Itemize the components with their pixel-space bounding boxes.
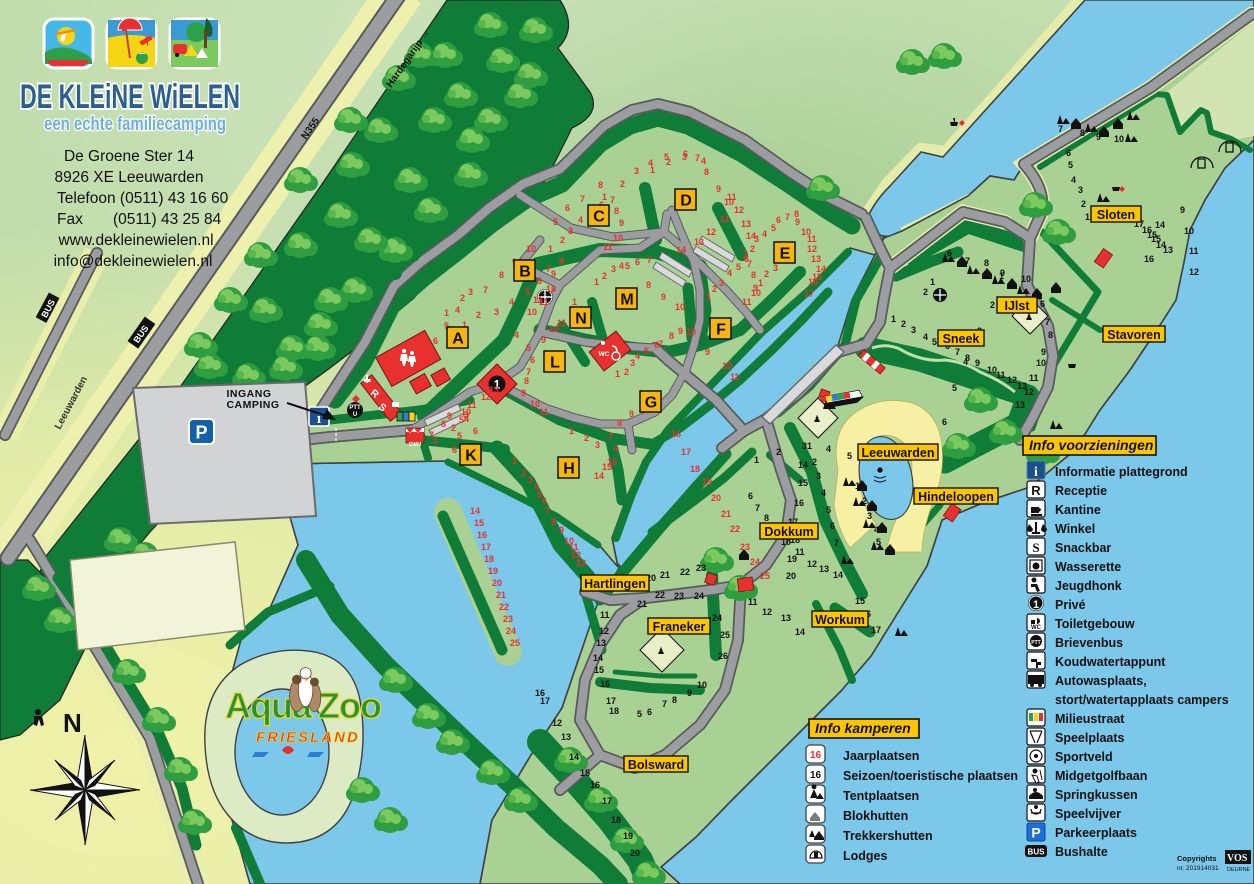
- svg-text:Privé: Privé: [1055, 598, 1086, 612]
- svg-text:3: 3: [816, 471, 821, 481]
- svg-text:♟: ♟: [813, 414, 821, 424]
- svg-text:6: 6: [565, 203, 570, 213]
- svg-text:3: 3: [1078, 185, 1083, 195]
- svg-text:1: 1: [891, 314, 896, 324]
- svg-text:2: 2: [620, 179, 625, 189]
- svg-text:24: 24: [712, 613, 722, 623]
- svg-text:Dokkum: Dokkum: [764, 525, 813, 539]
- svg-text:9: 9: [521, 388, 526, 398]
- svg-text:L: L: [550, 355, 560, 372]
- svg-text:8926 XE Leeuwarden: 8926 XE Leeuwarden: [54, 169, 203, 186]
- svg-text:7: 7: [483, 285, 488, 295]
- svg-text:13: 13: [561, 732, 571, 742]
- svg-text:7: 7: [955, 347, 960, 357]
- svg-text:2: 2: [812, 457, 817, 467]
- svg-text:4: 4: [509, 297, 514, 307]
- svg-text:Milieustraat: Milieustraat: [1055, 712, 1125, 726]
- svg-text:Winkel: Winkel: [1055, 522, 1095, 536]
- svg-text:8: 8: [614, 206, 619, 216]
- svg-text:Stavoren: Stavoren: [1107, 328, 1161, 342]
- svg-text:6: 6: [647, 707, 652, 717]
- svg-text:1: 1: [444, 308, 449, 318]
- svg-text:13: 13: [811, 254, 821, 264]
- svg-text:17: 17: [606, 696, 616, 706]
- svg-text:9: 9: [661, 292, 666, 302]
- svg-text:15: 15: [855, 596, 865, 606]
- svg-text:4: 4: [727, 268, 732, 278]
- svg-text:Midgetgolfbaan: Midgetgolfbaan: [1055, 769, 1147, 783]
- svg-text:15: 15: [798, 478, 808, 488]
- svg-text:K: K: [465, 448, 477, 465]
- svg-text:Speelvijver: Speelvijver: [1055, 807, 1121, 821]
- svg-text:9: 9: [1096, 132, 1101, 142]
- svg-text:Tentplaatsen: Tentplaatsen: [843, 789, 919, 803]
- svg-text:Brievenbus: Brievenbus: [1055, 636, 1123, 650]
- svg-text:S: S: [1032, 540, 1039, 555]
- svg-text:5: 5: [932, 337, 937, 347]
- svg-text:2: 2: [451, 423, 456, 433]
- svg-text:7: 7: [834, 538, 839, 548]
- svg-text:16: 16: [810, 770, 822, 781]
- svg-text:2: 2: [712, 284, 717, 294]
- svg-text:4: 4: [923, 332, 928, 342]
- svg-text:7: 7: [965, 256, 970, 266]
- svg-text:10: 10: [1036, 358, 1046, 368]
- svg-text:6: 6: [635, 257, 640, 267]
- svg-text:4: 4: [821, 488, 826, 498]
- svg-text:1: 1: [569, 426, 574, 436]
- svg-text:7: 7: [610, 195, 615, 205]
- svg-text:11: 11: [1029, 373, 1039, 383]
- svg-text:9: 9: [1000, 268, 1005, 278]
- svg-text:3: 3: [568, 226, 573, 236]
- svg-text:4: 4: [762, 229, 767, 239]
- svg-text:16: 16: [1144, 254, 1154, 264]
- svg-text:11: 11: [603, 242, 613, 252]
- svg-text:4: 4: [613, 444, 618, 454]
- svg-text:12: 12: [807, 244, 817, 254]
- svg-text:4: 4: [1071, 175, 1076, 185]
- svg-text:3: 3: [611, 264, 616, 274]
- svg-text:24: 24: [506, 626, 516, 636]
- svg-text:4: 4: [635, 351, 640, 361]
- svg-text:14: 14: [676, 245, 686, 255]
- svg-text:14: 14: [593, 653, 603, 663]
- svg-text:14: 14: [798, 460, 808, 470]
- svg-text:9: 9: [1180, 205, 1185, 215]
- svg-text:3: 3: [773, 263, 778, 273]
- svg-text:24: 24: [750, 557, 760, 567]
- svg-text:7: 7: [545, 506, 550, 516]
- svg-text:6: 6: [942, 417, 947, 427]
- svg-text:11: 11: [730, 372, 740, 382]
- svg-text:10: 10: [1184, 226, 1194, 236]
- svg-text:17: 17: [481, 542, 491, 552]
- svg-text:2: 2: [584, 433, 589, 443]
- svg-text:Zoo: Zoo: [318, 685, 381, 726]
- svg-text:9: 9: [795, 217, 800, 227]
- svg-text:Info kamperen: Info kamperen: [815, 720, 911, 736]
- svg-text:15: 15: [1151, 234, 1161, 244]
- svg-text:13: 13: [489, 385, 499, 395]
- svg-text:15: 15: [474, 518, 484, 528]
- svg-text:6: 6: [947, 248, 952, 258]
- svg-text:5: 5: [644, 346, 649, 356]
- svg-text:PTT: PTT: [1031, 640, 1040, 646]
- svg-text:R: R: [1031, 483, 1041, 498]
- svg-text:8: 8: [751, 270, 756, 280]
- svg-text:12: 12: [1024, 387, 1034, 397]
- svg-text:Toiletgebouw: Toiletgebouw: [1055, 617, 1135, 631]
- svg-text:7: 7: [608, 432, 613, 442]
- svg-text:H: H: [563, 461, 575, 478]
- svg-text:8: 8: [617, 418, 622, 428]
- svg-text:10: 10: [675, 302, 685, 312]
- svg-text:5: 5: [1068, 160, 1073, 170]
- svg-text:18: 18: [484, 554, 494, 564]
- svg-text:6: 6: [830, 521, 835, 531]
- svg-text:20: 20: [786, 571, 796, 581]
- svg-text:21: 21: [660, 570, 670, 580]
- svg-text:10: 10: [1114, 134, 1124, 144]
- svg-text:Bushalte: Bushalte: [1055, 845, 1108, 859]
- svg-text:www.dekleinewielen.nl: www.dekleinewielen.nl: [57, 232, 213, 249]
- svg-text:1: 1: [758, 278, 763, 288]
- svg-text:Fax: Fax: [57, 211, 83, 228]
- svg-text:1: 1: [930, 277, 935, 287]
- svg-text:i: i: [1034, 465, 1038, 480]
- svg-text:12: 12: [807, 559, 817, 569]
- svg-text:5: 5: [952, 383, 957, 393]
- svg-text:Telefoon (0511) 43 16 60: Telefoon (0511) 43 16 60: [57, 190, 229, 207]
- svg-text:10: 10: [724, 197, 734, 207]
- svg-text:2: 2: [476, 310, 481, 320]
- svg-text:1: 1: [1085, 212, 1090, 222]
- svg-text:Trekkershutten: Trekkershutten: [843, 829, 933, 843]
- svg-text:Blokhutten: Blokhutten: [843, 809, 908, 823]
- svg-text:6: 6: [473, 426, 478, 436]
- svg-text:5: 5: [826, 505, 831, 515]
- svg-text:E: E: [780, 246, 791, 263]
- svg-text:14: 14: [795, 627, 805, 637]
- svg-text:25: 25: [510, 638, 520, 648]
- svg-text:4: 4: [874, 525, 879, 535]
- svg-text:14: 14: [569, 752, 579, 762]
- svg-text:10: 10: [1021, 274, 1031, 284]
- svg-text:13: 13: [819, 564, 829, 574]
- svg-text:11: 11: [600, 610, 610, 620]
- svg-text:14: 14: [1155, 220, 1165, 230]
- svg-text:10: 10: [686, 327, 696, 337]
- svg-text:9: 9: [447, 411, 452, 421]
- svg-text:7: 7: [695, 153, 700, 163]
- svg-text:12: 12: [734, 205, 744, 215]
- svg-text:G: G: [645, 395, 657, 412]
- svg-text:22: 22: [499, 602, 509, 612]
- svg-text:7: 7: [658, 339, 663, 349]
- svg-text:19: 19: [623, 831, 633, 841]
- svg-text:5: 5: [553, 217, 558, 227]
- svg-text:De Groene Ster 14: De Groene Ster 14: [64, 148, 194, 165]
- svg-text:Parkeerplaats: Parkeerplaats: [1055, 826, 1137, 840]
- svg-text:6: 6: [748, 491, 753, 501]
- svg-text:2: 2: [602, 271, 607, 281]
- svg-text:Franeker: Franeker: [653, 620, 706, 634]
- svg-text:N: N: [63, 708, 82, 738]
- svg-text:6: 6: [1066, 148, 1071, 158]
- svg-text:3: 3: [867, 511, 872, 521]
- svg-text:3: 3: [634, 166, 639, 176]
- svg-text:BUS: BUS: [1028, 848, 1046, 857]
- svg-text:1: 1: [807, 441, 812, 451]
- svg-text:17: 17: [602, 796, 612, 806]
- svg-text:2: 2: [923, 287, 928, 297]
- svg-text:9: 9: [687, 688, 692, 698]
- svg-text:1: 1: [706, 292, 711, 302]
- svg-text:7: 7: [1045, 317, 1050, 327]
- svg-text:3: 3: [911, 325, 916, 335]
- svg-text:11: 11: [1189, 246, 1199, 256]
- svg-text:2: 2: [901, 319, 906, 329]
- svg-text:9: 9: [559, 525, 564, 535]
- svg-text:12: 12: [1189, 267, 1199, 277]
- svg-text:11: 11: [742, 297, 752, 307]
- svg-text:10: 10: [546, 284, 556, 294]
- svg-text:11: 11: [539, 407, 549, 417]
- svg-text:4: 4: [826, 444, 831, 454]
- svg-text:10: 10: [613, 233, 623, 243]
- svg-text:16: 16: [671, 429, 681, 439]
- svg-text:22: 22: [655, 590, 665, 600]
- svg-text:6: 6: [530, 355, 535, 365]
- svg-text:11: 11: [795, 547, 805, 557]
- svg-text:17: 17: [871, 625, 881, 635]
- svg-text:2: 2: [460, 293, 465, 303]
- svg-text:10: 10: [697, 680, 707, 690]
- svg-text:16: 16: [607, 457, 617, 467]
- svg-text:13: 13: [741, 219, 751, 229]
- svg-text:10: 10: [526, 244, 536, 254]
- svg-text:5: 5: [736, 262, 741, 272]
- svg-text:11: 11: [539, 297, 549, 307]
- svg-text:8: 8: [598, 180, 603, 190]
- svg-text:1: 1: [548, 244, 553, 254]
- svg-text:DE KLEiNE WiELEN: DE KLEiNE WiELEN: [20, 78, 240, 116]
- svg-text:19: 19: [702, 477, 712, 487]
- svg-text:nr. 201914031: nr. 201914031: [1177, 865, 1219, 872]
- svg-text:WC: WC: [599, 351, 610, 358]
- svg-text:4: 4: [701, 156, 706, 166]
- svg-text:9: 9: [705, 347, 710, 357]
- svg-text:17: 17: [681, 447, 691, 457]
- svg-text:9: 9: [1041, 347, 1046, 357]
- svg-text:Info voorzieningen: Info voorzieningen: [1029, 437, 1153, 453]
- svg-text:7: 7: [662, 699, 667, 709]
- svg-text:Autowasplaats,: Autowasplaats,: [1055, 674, 1147, 688]
- svg-text:9: 9: [619, 218, 624, 228]
- svg-text:DEURNE: DEURNE: [1227, 867, 1251, 873]
- svg-text:23: 23: [740, 542, 750, 552]
- svg-text:22: 22: [680, 567, 690, 577]
- svg-text:5: 5: [664, 152, 669, 162]
- svg-text:6: 6: [452, 445, 457, 455]
- svg-text:11: 11: [748, 597, 758, 607]
- svg-text:1: 1: [594, 277, 599, 287]
- svg-text:7: 7: [747, 259, 752, 269]
- svg-text:3: 3: [595, 440, 600, 450]
- svg-text:Snackbar: Snackbar: [1055, 541, 1111, 555]
- svg-text:P: P: [1031, 825, 1040, 841]
- svg-text:IJlst: IJlst: [1004, 299, 1030, 313]
- svg-text:5: 5: [637, 709, 642, 719]
- svg-text:A: A: [452, 331, 464, 348]
- svg-text:12: 12: [552, 718, 562, 728]
- svg-text:8: 8: [984, 258, 989, 268]
- svg-text:VOS: VOS: [1227, 853, 1248, 864]
- svg-text:M: M: [620, 292, 633, 309]
- svg-text:D: D: [680, 193, 692, 210]
- svg-text:14: 14: [470, 506, 480, 516]
- svg-text:8: 8: [1048, 330, 1053, 340]
- svg-text:21: 21: [496, 590, 506, 600]
- svg-text:3: 3: [719, 278, 724, 288]
- svg-text:18: 18: [611, 815, 621, 825]
- svg-text:11: 11: [720, 214, 730, 224]
- svg-text:B: B: [519, 264, 531, 281]
- svg-text:♟: ♟: [657, 646, 665, 656]
- svg-text:16: 16: [600, 679, 610, 689]
- svg-text:19: 19: [488, 566, 498, 576]
- svg-text:6: 6: [433, 336, 438, 346]
- svg-text:1: 1: [512, 456, 517, 466]
- svg-text:13: 13: [596, 638, 606, 648]
- svg-text:stort/watertapplaats campers: stort/watertapplaats campers: [1055, 693, 1229, 707]
- svg-text:WC: WC: [1031, 625, 1042, 631]
- svg-text:Lodges: Lodges: [843, 849, 887, 863]
- svg-text:1: 1: [754, 455, 759, 465]
- svg-text:6: 6: [542, 496, 547, 506]
- svg-text:25: 25: [760, 571, 770, 581]
- svg-text:Sloten: Sloten: [1097, 208, 1135, 222]
- svg-text:18: 18: [609, 706, 619, 716]
- svg-text:7: 7: [785, 212, 790, 222]
- svg-text:21: 21: [637, 599, 647, 609]
- svg-text:10: 10: [722, 361, 732, 371]
- svg-text:F: F: [716, 322, 726, 339]
- svg-text:4: 4: [514, 330, 519, 340]
- svg-text:4: 4: [578, 215, 583, 225]
- svg-text:2: 2: [750, 244, 755, 254]
- svg-text:2: 2: [624, 367, 629, 377]
- svg-text:8: 8: [499, 270, 504, 280]
- svg-text:11: 11: [807, 234, 817, 244]
- svg-text:13: 13: [1015, 400, 1025, 410]
- svg-text:Copyrights: Copyrights: [1177, 854, 1217, 863]
- svg-text:13: 13: [694, 237, 704, 247]
- svg-text:Springkussen: Springkussen: [1055, 788, 1138, 802]
- svg-text:26: 26: [718, 651, 728, 661]
- svg-text:20: 20: [492, 578, 502, 588]
- svg-text:1: 1: [615, 369, 620, 379]
- svg-text:Jaarplaatsen: Jaarplaatsen: [843, 749, 919, 763]
- svg-text:18: 18: [690, 464, 700, 474]
- svg-text:2: 2: [764, 269, 769, 279]
- svg-text:23: 23: [503, 614, 513, 624]
- svg-text:Koudwatertappunt: Koudwatertappunt: [1055, 655, 1166, 669]
- svg-text:FRIESLAND: FRIESLAND: [256, 729, 360, 746]
- svg-text:5: 5: [457, 431, 462, 441]
- svg-text:4: 4: [619, 261, 624, 271]
- svg-text:Leeuwarden: Leeuwarden: [862, 446, 935, 460]
- svg-text:20: 20: [711, 493, 721, 503]
- svg-text:2: 2: [862, 496, 867, 506]
- svg-text:16: 16: [477, 530, 487, 540]
- svg-text:C: C: [593, 209, 605, 226]
- svg-text:16: 16: [590, 780, 600, 790]
- svg-text:13: 13: [576, 558, 586, 568]
- svg-text:1: 1: [1033, 599, 1039, 611]
- svg-text:8: 8: [1080, 128, 1085, 138]
- svg-text:12: 12: [599, 626, 609, 636]
- svg-text:3: 3: [528, 475, 533, 485]
- svg-text:14: 14: [833, 570, 843, 580]
- svg-text:10: 10: [751, 288, 761, 298]
- svg-text:8: 8: [965, 353, 970, 363]
- svg-text:11: 11: [996, 370, 1006, 380]
- svg-text:Jeugdhonk: Jeugdhonk: [1055, 579, 1122, 593]
- svg-text:Receptie: Receptie: [1055, 484, 1107, 498]
- svg-text:10: 10: [527, 307, 537, 317]
- svg-text:8: 8: [764, 513, 769, 523]
- svg-text:2: 2: [990, 300, 995, 310]
- svg-text:12: 12: [762, 607, 772, 617]
- svg-text:N: N: [575, 311, 587, 328]
- svg-text:24: 24: [694, 591, 704, 601]
- svg-text:Kantine: Kantine: [1055, 503, 1101, 517]
- svg-text:CWM: CWM: [409, 442, 422, 448]
- svg-text:2: 2: [776, 447, 781, 457]
- svg-text:23: 23: [674, 591, 684, 601]
- svg-text:7: 7: [429, 430, 434, 440]
- svg-text:3: 3: [468, 287, 473, 297]
- svg-text:6: 6: [1040, 299, 1045, 309]
- svg-text:7: 7: [647, 255, 652, 265]
- svg-text:U: U: [353, 412, 357, 418]
- svg-text:16: 16: [794, 498, 804, 508]
- svg-text:4: 4: [648, 158, 653, 168]
- svg-text:9: 9: [716, 184, 721, 194]
- svg-text:17: 17: [804, 289, 814, 299]
- svg-text:info@dekleinewielen.nl: info@dekleinewielen.nl: [54, 253, 213, 270]
- svg-text:12: 12: [706, 227, 716, 237]
- svg-text:P: P: [195, 423, 207, 443]
- svg-text:16: 16: [810, 750, 822, 761]
- svg-text:1: 1: [572, 297, 577, 307]
- svg-text:Sneek: Sneek: [943, 332, 980, 346]
- svg-text:4: 4: [455, 305, 460, 315]
- svg-text:20: 20: [630, 848, 640, 858]
- svg-text:1: 1: [602, 192, 607, 202]
- svg-text:3: 3: [494, 307, 499, 317]
- svg-text:9: 9: [629, 409, 634, 419]
- svg-text:1: 1: [855, 481, 860, 491]
- svg-text:8: 8: [524, 376, 529, 386]
- svg-text:2: 2: [521, 468, 526, 478]
- svg-text:13: 13: [781, 613, 791, 623]
- svg-text:Sportveld: Sportveld: [1055, 750, 1113, 764]
- svg-text:5: 5: [525, 287, 530, 297]
- svg-text:8: 8: [669, 331, 674, 341]
